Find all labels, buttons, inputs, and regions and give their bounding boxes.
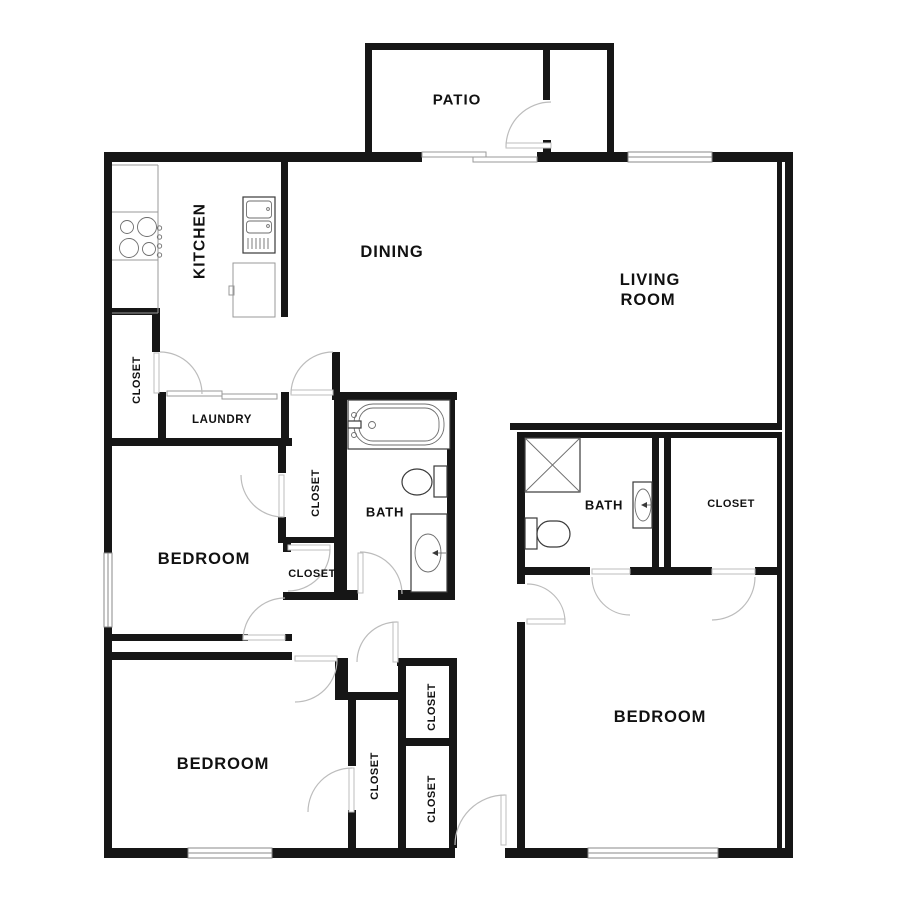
window-top [628,152,712,162]
toilet-right-bath [525,518,570,549]
toilet-left-bath [402,466,447,497]
label-dining: DINING [360,243,423,261]
label-bedroom-left: BEDROOM [158,550,250,568]
label-patio: PATIO [433,91,482,108]
floor-plan: PATIO KITCHEN DINING LIVING ROOM CLOSET … [0,0,900,900]
label-bath-right: BATH [585,498,623,513]
label-closet-bedroom-bottom-left: CLOSET [369,752,381,800]
refrigerator [243,197,275,253]
label-bath-left: BATH [366,505,404,520]
label-closet-center-bottom: CLOSET [426,775,438,823]
label-closet-bedroom1-bottom: CLOSET [288,568,336,580]
patio-walls [365,43,614,152]
laundry-bifold-doors [167,391,277,399]
label-laundry: LAUNDRY [192,414,252,426]
stove [120,218,162,258]
vanity-sink-right-bath [633,482,652,528]
kitchen-counter [112,165,158,313]
bathtub [348,400,450,449]
label-living-room-line2: ROOM [621,291,676,309]
vanity-sink-left-bath [411,514,447,592]
sliding-glass-door [422,152,537,162]
label-bedroom-bottom-left: BEDROOM [177,755,269,773]
label-bedroom-right: BEDROOM [614,708,706,726]
label-closet-bedroom1-top: CLOSET [310,469,322,517]
room-labels: PATIO KITCHEN DINING LIVING ROOM CLOSET … [131,91,755,823]
label-closet-hall: CLOSET [131,356,143,404]
label-closet-center-top: CLOSET [426,683,438,731]
window-left [104,553,112,627]
window-bottom-right [588,848,718,858]
label-closet-bath-right: CLOSET [707,498,755,510]
patio-wall-segments [365,43,614,152]
window-bottom-left [188,848,272,858]
kitchen-cabinet [229,263,275,317]
label-living-room-line1: LIVING [620,271,680,289]
label-kitchen: KITCHEN [191,203,208,279]
shower [525,438,580,492]
floor-plan-drawing: PATIO KITCHEN DINING LIVING ROOM CLOSET … [0,0,900,900]
